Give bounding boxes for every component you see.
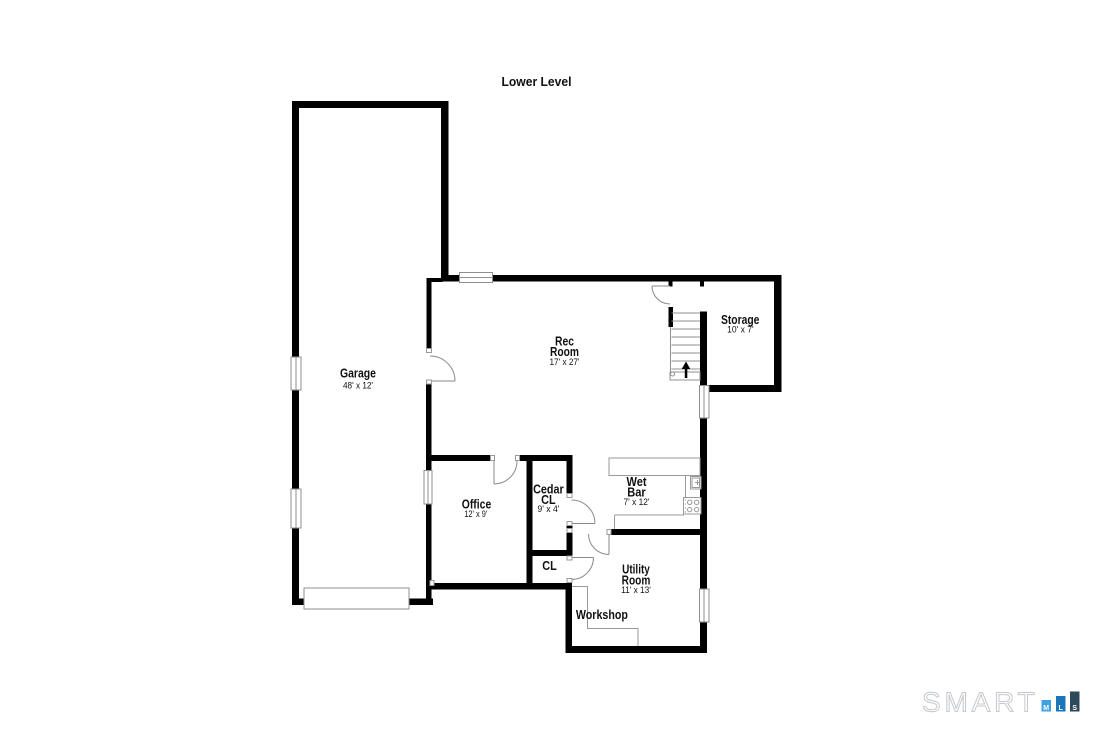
svg-text:Workshop: Workshop: [576, 608, 628, 622]
svg-text:12' x 9': 12' x 9': [464, 509, 487, 520]
svg-text:11' x 13': 11' x 13': [621, 585, 651, 596]
svg-text:10' x 7': 10' x 7': [727, 325, 754, 336]
svg-text:CL: CL: [542, 559, 557, 573]
svg-text:48' x 12': 48' x 12': [343, 380, 373, 391]
svg-text:Garage: Garage: [340, 366, 376, 380]
svg-text:9' x 4': 9' x 4': [537, 504, 559, 515]
svg-text:L: L: [1059, 705, 1064, 712]
svg-text:17' x 27': 17' x 27': [550, 357, 580, 368]
svg-text:S: S: [1072, 705, 1077, 712]
svg-text:M: M: [1043, 705, 1049, 712]
svg-text:SMART: SMART: [922, 687, 1039, 718]
svg-text:7' x 12': 7' x 12': [624, 497, 650, 508]
svg-text:Lower Level: Lower Level: [502, 75, 572, 89]
